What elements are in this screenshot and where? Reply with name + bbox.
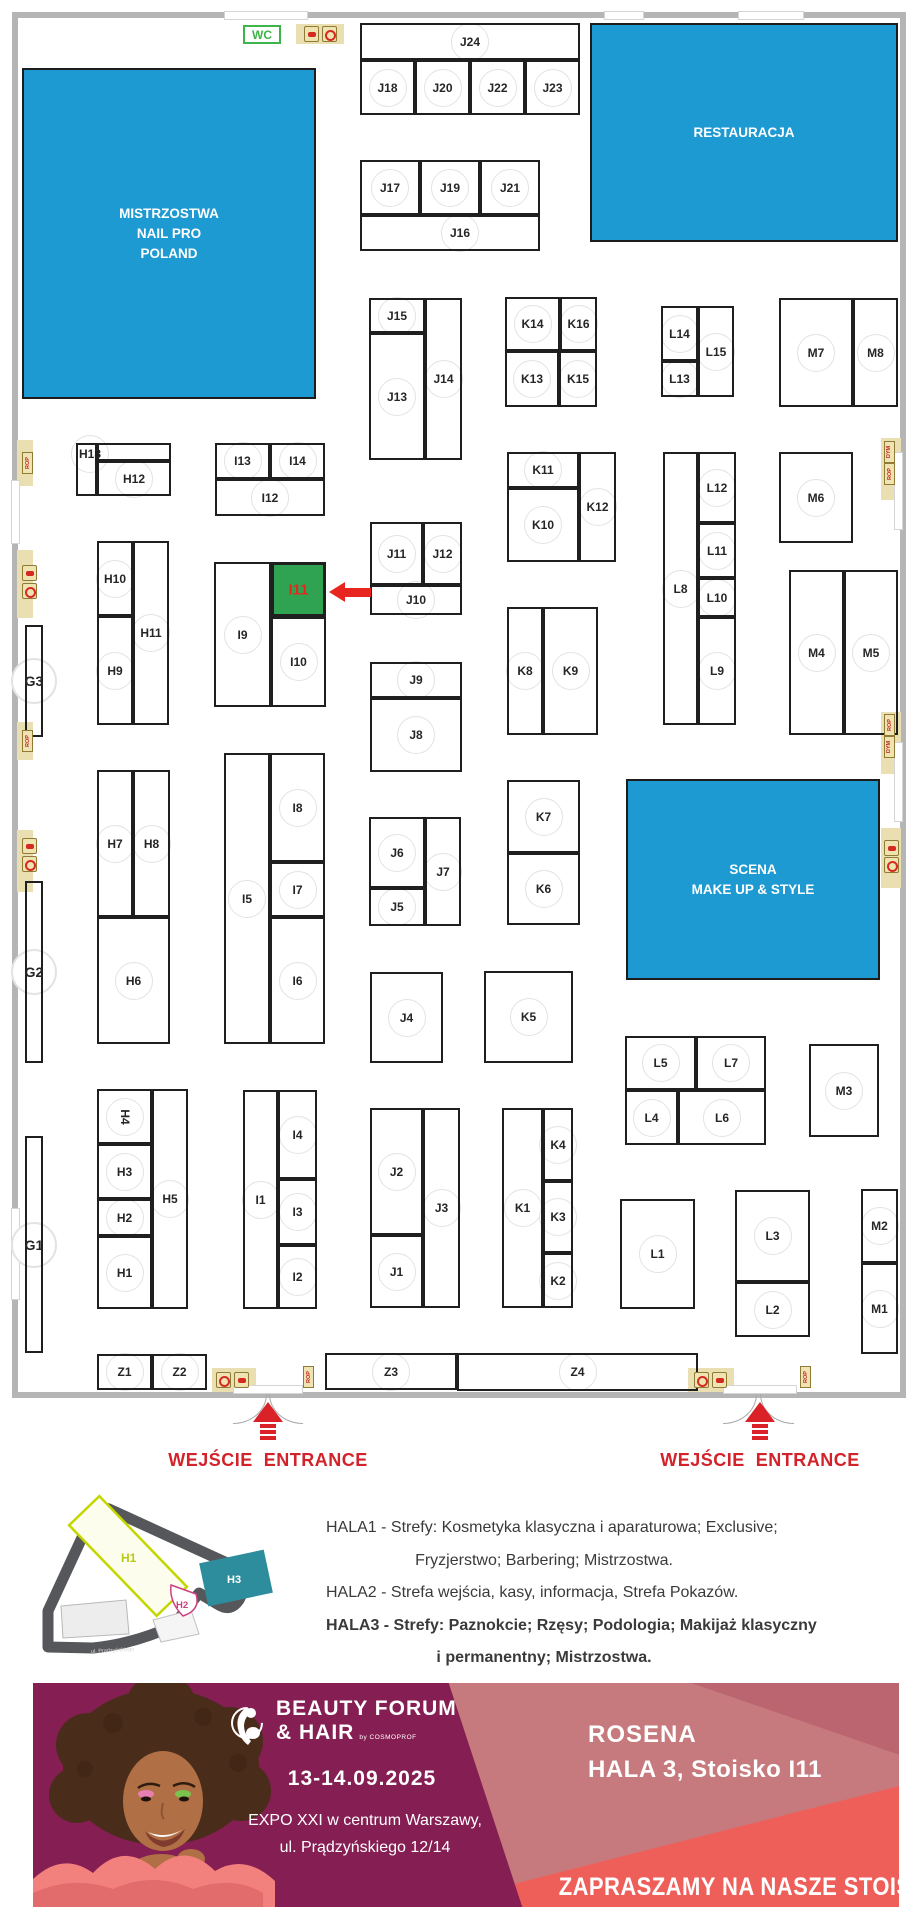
booth-label-I11: I11 <box>288 581 308 598</box>
booth-label-H5: H5 <box>162 1192 177 1206</box>
booth-label-L15: L15 <box>706 345 727 359</box>
entrance-arrow-icon <box>745 1402 775 1440</box>
minimap-building-small <box>153 1610 199 1642</box>
entrance-label: WEJŚCIE ENTRANCE <box>660 1450 860 1471</box>
minimap-hall2-label: H2 <box>176 1600 188 1611</box>
dym-marker-icon: DYM <box>884 736 895 758</box>
booth-label-J21: J21 <box>500 181 520 195</box>
promo-banner: BEAUTY FORUM & HAIR by COSMOPROF 13-14.0… <box>33 1683 899 1907</box>
booth-label-I9: I9 <box>237 628 247 642</box>
booth-label-K13: K13 <box>521 372 543 386</box>
booth-label-I2: I2 <box>292 1270 302 1284</box>
booth-label-J22: J22 <box>487 81 507 95</box>
booth-label-L10: L10 <box>707 591 728 605</box>
fire-extinguisher-icon <box>234 1372 249 1388</box>
address-line1: EXPO XXI w centrum Warszawy, <box>225 1807 505 1834</box>
entrance-arrow-icon <box>253 1402 283 1440</box>
hose-reel-icon <box>216 1372 231 1388</box>
booth-label-G1: G1 <box>25 1237 44 1253</box>
booth-label-I13: I13 <box>234 454 251 468</box>
booth-label-J12: J12 <box>432 547 452 561</box>
wall-door-gap <box>224 11 308 20</box>
booth-label-H11: H11 <box>140 626 161 640</box>
wall-door-gap <box>11 480 20 544</box>
booth-label-L8: L8 <box>673 582 687 596</box>
booth-label-L6: L6 <box>715 1111 729 1125</box>
arrow-head <box>329 582 345 602</box>
booth-label-G2: G2 <box>25 964 44 980</box>
legend-line: HALA1 - Strefy: Kosmetyka klasyczna i ap… <box>326 1512 762 1545</box>
logo-byline: by COSMOPROF <box>359 1726 416 1750</box>
booth-label-K3: K3 <box>550 1210 565 1224</box>
booth-label-J14: J14 <box>433 372 453 386</box>
booth-label-J16: J16 <box>450 226 470 240</box>
booth-label-J15: J15 <box>387 309 407 323</box>
booth-label-K11: K11 <box>532 463 553 477</box>
booth-label-H10: H10 <box>104 572 126 586</box>
booth-label-H12: H12 <box>123 472 145 486</box>
booth-label-M6: M6 <box>808 491 825 505</box>
booth-label-M5: M5 <box>863 646 880 660</box>
hose-reel-icon <box>22 856 37 872</box>
fire-extinguisher-icon <box>884 840 899 856</box>
area-scena: SCENAMAKE UP & STYLE <box>626 779 880 980</box>
area-mistrzostwa: MISTRZOSTWANAIL PROPOLAND <box>22 68 316 399</box>
booth-label-I4: I4 <box>292 1128 302 1142</box>
arrow-shaft <box>345 588 371 597</box>
legend-line: Fryzjerstwo; Barbering; Mistrzostwa. <box>326 1545 762 1578</box>
booth-label-J23: J23 <box>542 81 562 95</box>
minimap-street-label: ul. Prądzyńskiego <box>91 1647 135 1655</box>
site-minimap: H1 H2 H3 ul. Prądzyńskiego <box>33 1490 277 1670</box>
booth-label-Z4: Z4 <box>570 1365 584 1379</box>
booth-label-H3: H3 <box>117 1165 132 1179</box>
wall-door-gap <box>894 452 903 530</box>
floor-plan-page: { "floorplan": { "wc_label": "WC", "area… <box>0 0 922 1920</box>
booth-label-L13: L13 <box>669 372 690 386</box>
fire-extinguisher-icon <box>304 26 319 42</box>
booth-label-K10: K10 <box>532 518 554 532</box>
rop-marker-icon: ROP <box>303 1366 314 1388</box>
event-date: 13-14.09.2025 <box>272 1767 452 1791</box>
booth-label-J1: J1 <box>390 1265 403 1279</box>
fire-extinguisher-icon <box>22 838 37 854</box>
booth-label-J24: J24 <box>460 35 480 49</box>
booth-label-K8: K8 <box>517 664 532 678</box>
dym-marker-icon: DYM <box>884 441 895 463</box>
booth-label-K9: K9 <box>563 664 578 678</box>
booth-label-J10: J10 <box>406 593 426 607</box>
booth-label-J18: J18 <box>377 81 397 95</box>
wall-door-gap <box>723 1385 797 1394</box>
minimap-building-gray <box>61 1600 129 1638</box>
booth-label-M7: M7 <box>808 346 825 360</box>
event-address: EXPO XXI w centrum Warszawy, ul. Prądzyń… <box>225 1807 505 1861</box>
booth-label-M1: M1 <box>871 1302 888 1316</box>
wall-door-gap <box>604 11 644 20</box>
rop-marker-icon: ROP <box>800 1366 811 1388</box>
hose-reel-icon <box>322 26 337 42</box>
booth-label-J17: J17 <box>380 181 400 195</box>
booth-label-L9: L9 <box>710 664 724 678</box>
booth-label-H6: H6 <box>126 974 141 988</box>
booth-label-I8: I8 <box>292 801 302 815</box>
booth-label-H7: H7 <box>107 837 122 851</box>
booth-label-L3: L3 <box>765 1229 779 1243</box>
booth-label-J5: J5 <box>390 900 403 914</box>
booth-label-H8: H8 <box>144 837 159 851</box>
booth-label-Z1: Z1 <box>117 1365 131 1379</box>
logo-line2: & HAIR <box>276 1721 354 1745</box>
hose-reel-icon <box>22 583 37 599</box>
rop-marker-icon: ROP <box>22 452 33 474</box>
booth-label-J11: J11 <box>387 547 406 561</box>
booth-label-J8: J8 <box>409 728 422 742</box>
legend-line: i permanentny; Mistrzostwa. <box>326 1642 762 1675</box>
exhibitor-name: ROSENA <box>588 1721 697 1749</box>
booth-label-L14: L14 <box>669 327 690 341</box>
booth-label-K4: K4 <box>550 1138 565 1152</box>
booth-label-H2: H2 <box>117 1211 132 1225</box>
booth-label-K1: K1 <box>515 1201 530 1215</box>
wc-sign: WC <box>243 25 281 44</box>
beauty-forum-logo: BEAUTY FORUM & HAIR by COSMOPROF <box>227 1697 457 1750</box>
fire-extinguisher-icon <box>712 1372 727 1388</box>
minimap-hall3-label: H3 <box>227 1574 241 1586</box>
booth-label-I5: I5 <box>242 892 252 906</box>
booth-label-K7: K7 <box>536 810 551 824</box>
booth-label-K14: K14 <box>521 317 543 331</box>
booth-label-J9: J9 <box>409 673 422 687</box>
rop-marker-icon: ROP <box>884 714 895 736</box>
booth-label-Z2: Z2 <box>172 1365 186 1379</box>
booth-label-I14: I14 <box>289 454 306 468</box>
booth-label-J19: J19 <box>440 181 460 195</box>
booth-label-L4: L4 <box>644 1111 658 1125</box>
booth-label-H1: H1 <box>117 1266 132 1280</box>
wall-door-gap <box>894 742 903 822</box>
booth-label-K15: K15 <box>567 372 589 386</box>
booth-label-M4: M4 <box>808 646 825 660</box>
booth-label-J20: J20 <box>432 81 452 95</box>
highlight-arrow-icon <box>329 582 371 602</box>
booth-label-J13: J13 <box>387 390 407 404</box>
booth-label-I6: I6 <box>292 974 302 988</box>
booth-label-I7: I7 <box>292 883 302 897</box>
minimap-hall1-label: H1 <box>121 1551 137 1565</box>
hall-legend: HALA1 - Strefy: Kosmetyka klasyczna i ap… <box>326 1512 762 1675</box>
booth-label-I3: I3 <box>292 1205 302 1219</box>
entrance-label: WEJŚCIE ENTRANCE <box>168 1450 368 1471</box>
booth-label-L1: L1 <box>650 1247 664 1261</box>
booth-label-M2: M2 <box>871 1219 888 1233</box>
booth-label-H13: H13 <box>79 447 101 461</box>
rop-marker-icon: ROP <box>22 730 33 752</box>
booth-label-L2: L2 <box>765 1303 779 1317</box>
booth-label-M3: M3 <box>836 1084 853 1098</box>
rop-marker-icon: ROP <box>884 463 895 485</box>
booth-label-H4: H4 <box>118 1109 132 1124</box>
booth-label-G3: G3 <box>25 673 44 689</box>
booth-label-K6: K6 <box>536 882 551 896</box>
wall-door-gap <box>738 11 804 20</box>
booth-label-L7: L7 <box>724 1056 738 1070</box>
fire-extinguisher-icon <box>22 565 37 581</box>
logo-mark-icon <box>227 1697 269 1749</box>
booth-location: HALA 3, Stoisko I11 <box>588 1756 822 1784</box>
logo-text: BEAUTY FORUM & HAIR by COSMOPROF <box>276 1697 457 1750</box>
address-line2: ul. Prądzyńskiego 12/14 <box>225 1834 505 1861</box>
logo-line1: BEAUTY FORUM <box>276 1697 457 1721</box>
booth-label-J3: J3 <box>435 1201 448 1215</box>
legend-line: HALA2 - Strefa wejścia, kasy, informacja… <box>326 1577 762 1610</box>
legend-line: HALA3 - Strefy: Paznokcie; Rzęsy; Podolo… <box>326 1610 762 1643</box>
booth-label-K12: K12 <box>586 500 608 514</box>
cta-text: ZAPRASZAMY NA NASZE STOISKO! <box>559 1873 863 1902</box>
booth-label-M8: M8 <box>867 346 884 360</box>
booth-unlabeled <box>97 443 171 461</box>
booth-label-K5: K5 <box>521 1010 536 1024</box>
hose-reel-icon <box>884 857 899 873</box>
booth-label-Z3: Z3 <box>384 1365 398 1379</box>
booth-label-L5: L5 <box>653 1056 667 1070</box>
booth-label-I1: I1 <box>255 1193 265 1207</box>
booth-label-J6: J6 <box>390 846 403 860</box>
booth-label-L12: L12 <box>707 481 728 495</box>
booth-label-H9: H9 <box>107 664 122 678</box>
booth-label-K16: K16 <box>567 317 589 331</box>
booth-label-K2: K2 <box>550 1274 565 1288</box>
booth-label-I10: I10 <box>290 655 307 669</box>
booth-label-J4: J4 <box>400 1011 413 1025</box>
booth-label-I12: I12 <box>262 491 279 505</box>
booth-label-L11: L11 <box>707 544 727 558</box>
area-restauracja: RESTAURACJA <box>590 23 898 242</box>
hose-reel-icon <box>694 1372 709 1388</box>
booth-label-J2: J2 <box>390 1165 403 1179</box>
booth-label-J7: J7 <box>436 865 449 879</box>
